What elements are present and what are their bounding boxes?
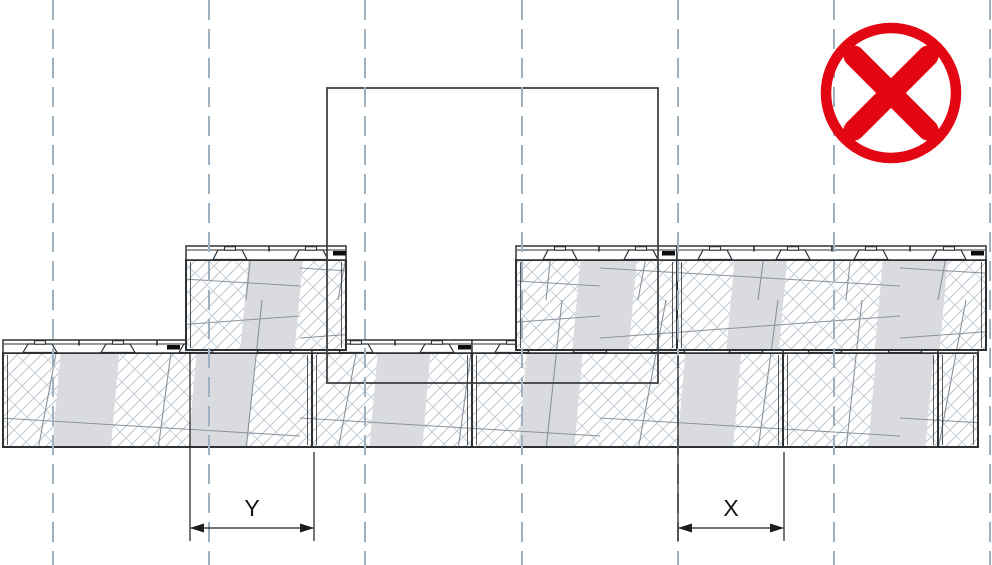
wall-block — [312, 340, 472, 447]
interlock-knob — [698, 250, 732, 260]
wall-block — [3, 340, 312, 447]
interlock-knob — [294, 250, 328, 260]
arrowhead-right-icon — [300, 524, 314, 533]
interlock-knob — [932, 250, 966, 260]
block-installation-diagram: Y X — [0, 0, 992, 565]
wall-block — [516, 246, 677, 350]
interlock-knob — [543, 250, 577, 260]
wall-block — [783, 340, 938, 447]
dimension-y-label: Y — [244, 495, 259, 521]
wall-block — [677, 246, 986, 350]
interlock-knob — [23, 344, 57, 353]
prohibition-icon — [826, 28, 956, 158]
interlock-knob — [420, 344, 454, 353]
lifting-anchor-mark — [971, 251, 984, 256]
lifting-anchor-mark — [458, 345, 471, 350]
lower-course — [3, 340, 978, 447]
block-rim — [677, 246, 986, 260]
interlock-knob — [213, 250, 247, 260]
lifting-anchor-mark — [167, 345, 180, 350]
arrowhead-right-icon — [770, 524, 784, 533]
wall-block — [472, 340, 783, 447]
interlock-knob — [624, 250, 658, 260]
lifting-anchor-mark — [662, 251, 675, 256]
arrowhead-left-icon — [678, 524, 692, 533]
dimension-x-label: X — [723, 495, 738, 521]
block-rim — [516, 246, 677, 260]
arrowhead-left-icon — [190, 524, 204, 533]
interlock-knob — [101, 344, 135, 353]
wall-block — [938, 340, 978, 447]
interlock-knob — [854, 250, 888, 260]
block-courses — [3, 246, 986, 447]
interlock-knob — [776, 250, 810, 260]
upper-course — [186, 246, 986, 350]
lifting-anchor-mark — [333, 251, 346, 256]
diagram-stage: Y X — [0, 0, 992, 565]
